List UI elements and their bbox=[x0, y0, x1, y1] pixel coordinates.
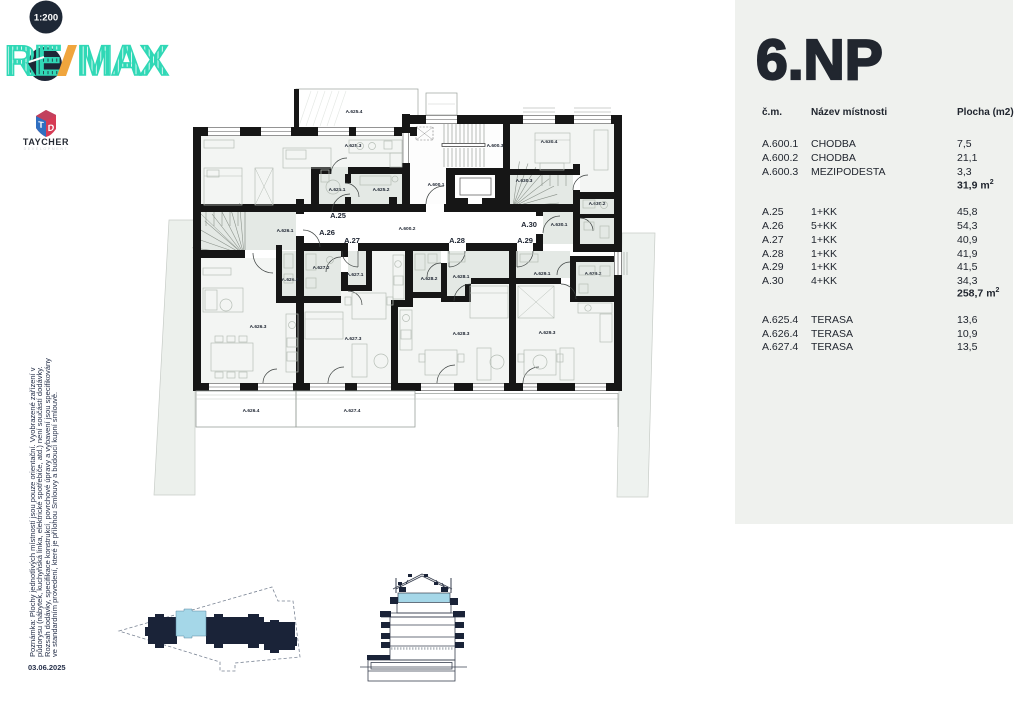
svg-text:A.626.1: A.626.1 bbox=[277, 228, 294, 234]
svg-text:A.25: A.25 bbox=[330, 211, 346, 220]
svg-text:A.626.3: A.626.3 bbox=[250, 324, 267, 330]
svg-text:T: T bbox=[38, 119, 44, 130]
svg-text:A.625.2: A.625.2 bbox=[373, 187, 390, 193]
svg-text:A.626.4: A.626.4 bbox=[243, 408, 260, 414]
svg-text:MAX: MAX bbox=[77, 37, 169, 85]
svg-text:A.629.3: A.629.3 bbox=[539, 330, 556, 336]
svg-text:A.627.1: A.627.1 bbox=[347, 272, 364, 278]
svg-text:A.600.3: A.600.3 bbox=[487, 143, 504, 149]
svg-text:A.29: A.29 bbox=[517, 236, 533, 245]
svg-text:A.628.2: A.628.2 bbox=[421, 276, 438, 282]
svg-text:D: D bbox=[48, 122, 55, 133]
svg-text:A.26: A.26 bbox=[319, 228, 335, 237]
svg-text:A.30: A.30 bbox=[521, 220, 537, 229]
svg-text:N: N bbox=[17, 53, 22, 60]
svg-text:A.628.1: A.628.1 bbox=[453, 274, 470, 280]
svg-text:A.630.3: A.630.3 bbox=[516, 178, 533, 184]
svg-text:1:200: 1:200 bbox=[34, 13, 58, 24]
svg-text:A.627.3: A.627.3 bbox=[345, 336, 362, 342]
svg-text:A.600.2: A.600.2 bbox=[399, 226, 416, 232]
svg-text:TAYCHER: TAYCHER bbox=[23, 137, 69, 147]
svg-text:A.27: A.27 bbox=[344, 236, 360, 245]
svg-text:A.627.4: A.627.4 bbox=[344, 408, 361, 414]
svg-text:DEVELOPMENT: DEVELOPMENT bbox=[24, 147, 69, 151]
svg-text:A.600.1: A.600.1 bbox=[428, 182, 445, 188]
svg-text:A.630.1: A.630.1 bbox=[551, 222, 568, 228]
svg-text:A.625.1: A.625.1 bbox=[329, 187, 346, 193]
svg-text:A.628.3: A.628.3 bbox=[453, 331, 470, 337]
svg-text:A.625.4: A.625.4 bbox=[346, 109, 363, 115]
svg-text:A.629.1: A.629.1 bbox=[534, 271, 551, 277]
svg-text:A.28: A.28 bbox=[449, 236, 465, 245]
svg-text:A.629.2: A.629.2 bbox=[585, 271, 602, 277]
svg-text:A.625.3: A.625.3 bbox=[345, 143, 362, 149]
